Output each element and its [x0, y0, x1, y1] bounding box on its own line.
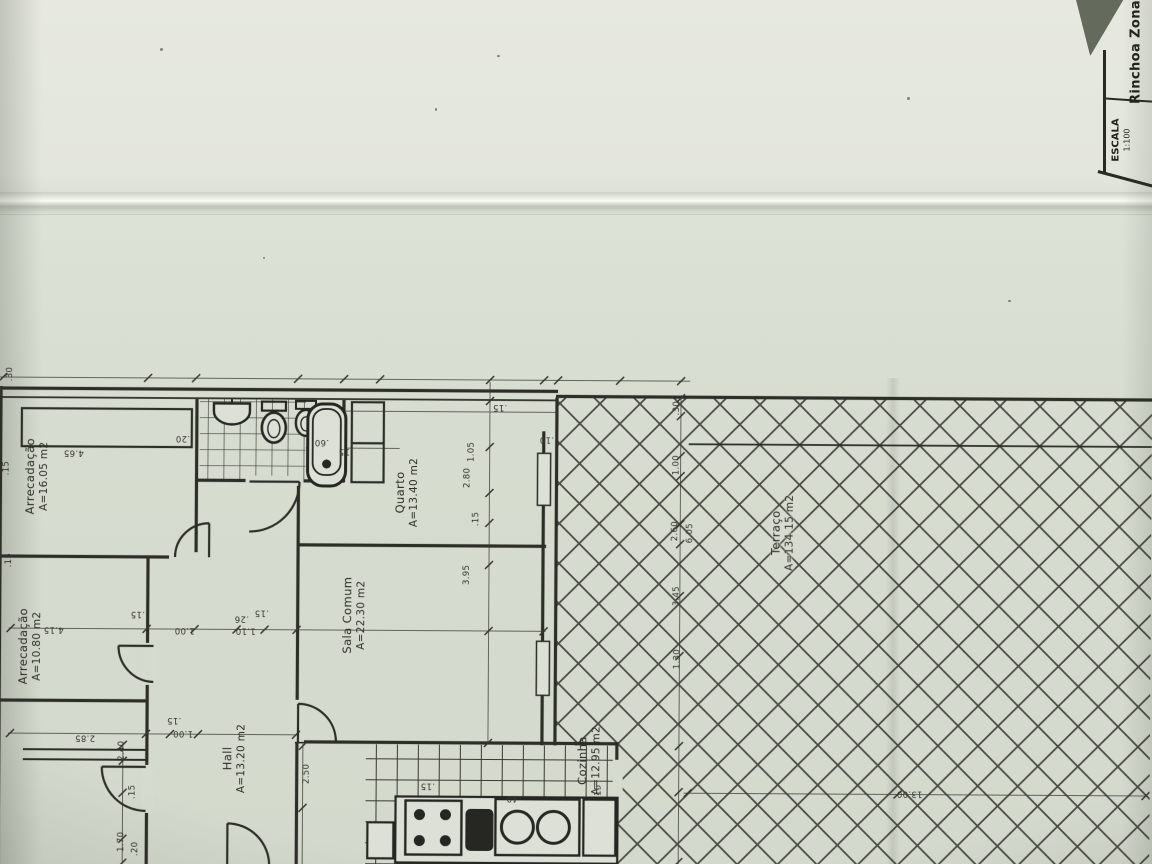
- title-block-project-name: Rinchoa Zona: [1129, 0, 1144, 104]
- room-label-hall: Hall A=13.20 m2: [220, 724, 249, 793]
- scanned-floorplan-photo: Arrecadação A=16.05 m2 Arrecadação A=10.…: [0, 0, 1152, 864]
- dimension-label: .15: [128, 785, 138, 799]
- dimension-label: .30: [672, 401, 682, 415]
- dimension-label: .15: [594, 784, 604, 798]
- dimension-label: .26: [234, 613, 248, 623]
- dimension-label: .15: [4, 553, 14, 567]
- dimension-label: .40: [506, 793, 520, 803]
- dimension-label: 1.05: [467, 442, 477, 462]
- dimension-label: 1.00: [174, 625, 194, 635]
- dimension-label: .15: [130, 609, 144, 619]
- dimension-label: 2.50: [302, 764, 312, 784]
- room-area: A=13.20 m2: [235, 724, 249, 793]
- title-block-border: [1103, 50, 1106, 172]
- dimension-label: .15: [167, 715, 181, 725]
- room-name: Hall: [220, 724, 235, 793]
- room-area: A=22.30 m2: [355, 577, 369, 654]
- dimension-label: .20: [176, 433, 190, 443]
- dimension-label: .10: [540, 434, 554, 444]
- room-name: Sala Comum: [340, 577, 355, 654]
- room-name: Terraço: [769, 495, 784, 571]
- scale-label: ESCALA: [1111, 118, 1122, 161]
- room-label-arrecadacao-2: Arrecadação A=10.80 m2: [16, 608, 45, 685]
- dimension-label: .20: [130, 842, 140, 856]
- dimension-label: 1.00: [672, 455, 682, 475]
- dimension-label: 2.40: [117, 741, 127, 761]
- dimension-label: 2.85: [75, 732, 95, 742]
- floorplan-area: Arrecadação A=16.05 m2 Arrecadação A=10.…: [0, 0, 1152, 864]
- dimension-label: 13.00: [897, 788, 923, 798]
- room-name: Arrecadação: [16, 608, 31, 685]
- scale-value: 1:100: [1122, 118, 1131, 161]
- dimension-label: .15: [420, 781, 434, 791]
- dimension-label: .15: [254, 608, 268, 618]
- dimension-label: 4.15: [43, 624, 63, 634]
- kitchen-fixtures: [367, 796, 617, 864]
- dimension-label: 3.95: [462, 565, 472, 585]
- dimension-label: .15: [471, 512, 481, 526]
- room-area: A=13.40 m2: [408, 458, 422, 527]
- dimension-label: 1.30: [672, 649, 682, 669]
- dimension-label: .15: [493, 402, 507, 412]
- dimension-label: 2.80: [462, 468, 472, 488]
- title-block-scale: ESCALA 1:100: [1111, 118, 1132, 161]
- room-area: A=16.05 m2: [38, 438, 52, 515]
- room-area: A=10.80 m2: [31, 608, 45, 685]
- dimension-label: 1.00: [173, 728, 193, 738]
- dimension-label: .15: [338, 446, 352, 456]
- room-name: Arrecadação: [23, 438, 38, 515]
- dimension-label: .30: [5, 367, 15, 381]
- dimension-label: 3.45: [672, 586, 682, 606]
- room-label-sala-comum: Sala Comum A=22.30 m2: [340, 577, 369, 654]
- dimension-label: 6.05: [685, 523, 695, 543]
- dimension-label: .15: [2, 461, 12, 475]
- dimension-label: .60: [315, 437, 329, 447]
- room-label-quarto: Quarto A=13.40 m2: [393, 458, 422, 527]
- dimension-label: 1.10: [235, 625, 255, 635]
- room-name: Cozinha: [575, 726, 590, 795]
- room-name: Quarto: [393, 458, 408, 527]
- room-label-arrecadacao-1: Arrecadação A=16.05 m2: [23, 438, 52, 515]
- room-area: A=134.15 m2: [784, 495, 798, 571]
- dimension-label: 2.60: [670, 521, 680, 541]
- dimension-label: 4.65: [64, 447, 84, 457]
- room-label-terraco: Terraço A=134.15 m2: [769, 495, 798, 571]
- dimension-label: 1.70: [116, 832, 126, 852]
